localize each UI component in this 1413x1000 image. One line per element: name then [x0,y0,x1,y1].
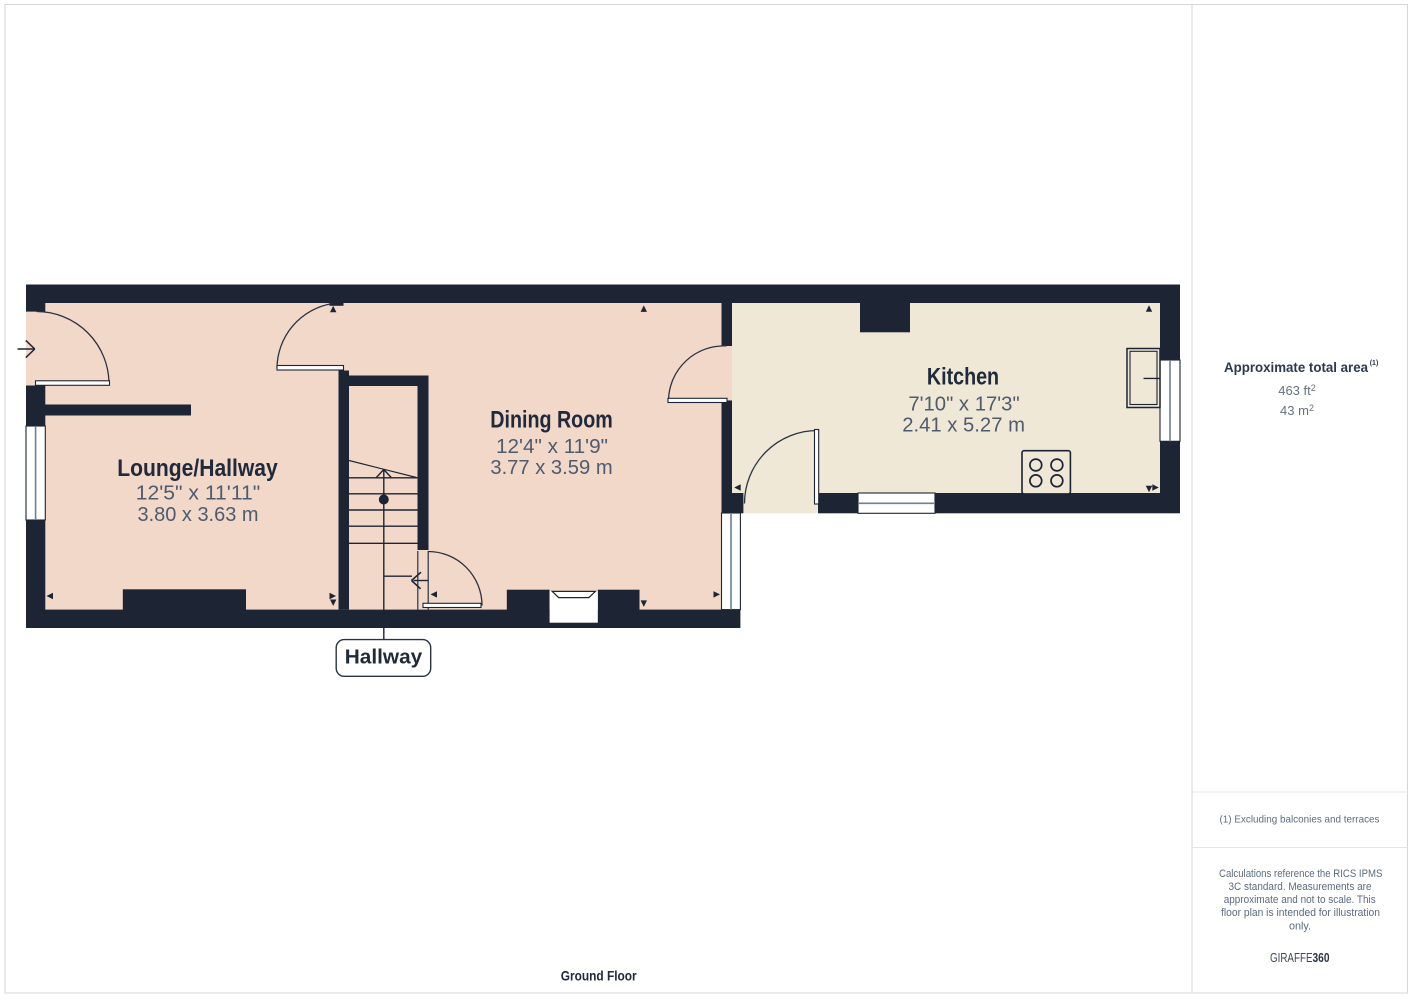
svg-text:Dining Room: Dining Room [490,407,613,434]
svg-text:only.: only. [1289,921,1311,933]
svg-text:3.80 x 3.63 m: 3.80 x 3.63 m [138,504,259,526]
svg-text:(1) Excluding balconies and te: (1) Excluding balconies and terraces [1220,814,1380,826]
svg-text:12'5" x 11'11": 12'5" x 11'11" [136,482,261,504]
svg-text:Ground Floor: Ground Floor [561,968,637,984]
svg-text:463 ft2: 463 ft2 [1278,383,1316,398]
svg-text:Lounge/Hallway: Lounge/Hallway [117,455,278,482]
svg-text:43 m2: 43 m2 [1280,403,1314,418]
svg-text:7'10" x 17'3": 7'10" x 17'3" [908,393,1019,415]
svg-text:Hallway: Hallway [345,647,423,669]
svg-text:3C standard. Measurements are: 3C standard. Measurements are [1229,881,1372,893]
svg-text:Calculations reference the RIC: Calculations reference the RICS IPMS [1219,868,1382,880]
svg-text:GIRAFFE360: GIRAFFE360 [1270,951,1330,965]
svg-text:Approximate total area: Approximate total area [1224,360,1368,375]
svg-text:2.41 x 5.27 m: 2.41 x 5.27 m [902,414,1025,436]
svg-text:3.77 x 3.59 m: 3.77 x 3.59 m [490,457,612,479]
svg-text:floor plan is intended for ill: floor plan is intended for illustration [1221,907,1380,919]
svg-text:(1): (1) [1370,360,1379,367]
svg-text:Kitchen: Kitchen [927,364,999,391]
svg-text:approximate and not to scale.: approximate and not to scale. This [1224,894,1377,906]
svg-text:12'4" x 11'9": 12'4" x 11'9" [496,436,608,458]
